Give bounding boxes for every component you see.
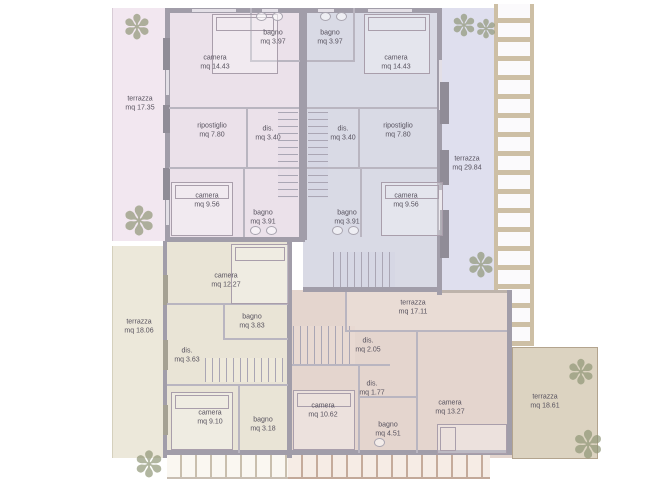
room-area: mq 17.11 [399,308,428,315]
stair-bottom-right [293,326,355,366]
room-name: terrazza [454,155,479,162]
partition [238,386,240,453]
room-area: mq 14.43 [200,63,229,70]
room-area: mq 18.61 [530,402,559,409]
tree-icon: ✽ [123,11,152,45]
room-area: mq 2.05 [355,346,380,353]
label-br-bagno: bagnomq 4.51 [375,421,400,439]
room-name: bagno [253,416,272,423]
partition [345,292,347,332]
room-area: mq 7.80 [199,131,224,138]
pilaster [163,38,170,70]
room-area: mq 3.40 [255,134,280,141]
room-name: camera [203,54,226,61]
partition [345,330,507,332]
pilaster [163,275,168,305]
room-area: mq 12.27 [211,281,240,288]
tree-icon: ✽ [475,17,497,43]
partition [360,169,362,237]
room-name: camera [438,399,461,406]
label-br-terrazza1: terrazzamq 17.11 [399,299,428,317]
room-name: ripostiglio [197,122,227,129]
label-tr-dis: dis.mq 3.40 [330,125,355,143]
pilaster [163,105,170,133]
sink-icon [348,226,359,235]
room-area: mq 3.91 [334,218,359,225]
room-name: bagno [378,421,397,428]
room-name: dis. [263,125,274,132]
room-area: mq 1.77 [359,389,384,396]
tree-icon: ✽ [572,426,604,464]
room-area: mq 4.51 [375,430,400,437]
partition [223,338,288,340]
room-area: mq 3.40 [330,134,355,141]
partition [169,107,299,109]
room-name: dis. [182,347,193,354]
stair-central-right [308,112,328,198]
tree-icon: ✽ [451,12,476,42]
partition [292,364,390,366]
room-area: mq 3.97 [317,38,342,45]
room-name: terrazza [400,299,425,306]
room-name: camera [394,192,417,199]
pilaster [440,82,449,124]
label-tl-bagno2: bagnomq 3.91 [250,209,275,227]
label-tl-camera1: cameramq 14.43 [200,54,229,72]
room-area: mq 17.35 [125,104,154,111]
partition [307,60,355,62]
partition [358,366,360,453]
room-name: bagno [320,29,339,36]
partition [167,384,288,386]
label-tr-camera1: cameramq 14.43 [381,54,410,72]
sink-icon [266,226,277,235]
wall-right-bottom [507,290,512,455]
tree-icon: ✽ [567,356,596,390]
label-br-camera2: cameramq 13.27 [435,399,464,417]
label-bl-bagno2: bagnomq 3.18 [250,416,275,434]
window [368,9,412,12]
pilaster [440,150,449,185]
room-area: mq 9.56 [194,201,219,208]
room-area: mq 9.56 [393,201,418,208]
partition [246,109,248,169]
sink-icon [374,438,385,447]
room-name: camera [311,402,334,409]
room-area: mq 3.83 [239,322,264,329]
label-br-dis1: dis.mq 2.05 [355,337,380,355]
room-name: dis. [367,380,378,387]
label-tr-ripostiglio: ripostigliomq 7.80 [383,122,413,140]
wall-mid-left [165,237,305,242]
pilaster [163,405,168,435]
partition [353,8,355,62]
sink-icon [320,12,331,21]
sink-icon [250,226,261,235]
room-area: mq 29.84 [452,164,481,171]
room-name: terrazza [127,95,152,102]
stair-bottom-left [205,358,283,382]
bed-icon [293,390,355,450]
sink-icon [336,12,347,21]
label-tl-ripostiglio: ripostigliomq 7.80 [197,122,227,140]
partition [307,107,437,109]
deck-bottom-right [288,455,490,479]
room-name: terrazza [532,393,557,400]
tree-icon: ✽ [134,448,164,484]
label-br-camera1: cameramq 10.62 [308,402,337,420]
room-area: mq 9.10 [197,418,222,425]
room-area: mq 3.63 [174,356,199,363]
label-br-dis2: dis.mq 1.77 [359,380,384,398]
room-area: mq 14.43 [381,63,410,70]
room-name: bagno [253,209,272,216]
label-tl-camera2: cameramq 9.56 [194,192,219,210]
pilaster [163,168,170,200]
wall-party-top [299,8,307,240]
sink-icon [272,12,283,21]
room-name: dis. [363,337,374,344]
room-name: dis. [338,125,349,132]
sink-icon [332,226,343,235]
tree-icon: ✽ [122,202,156,242]
deck-bottom-left [167,455,288,479]
label-tr-terrazza: terrazzamq 29.84 [452,155,481,173]
label-bl-camera1: cameramq 12.27 [211,272,240,290]
room-name: camera [214,272,237,279]
label-br-terrazza2: terrazzamq 18.61 [530,393,559,411]
partition [307,167,437,169]
label-bl-dis: dis.mq 3.63 [174,347,199,365]
label-bl-bagno1: bagnomq 3.83 [239,313,264,331]
room-area: mq 7.80 [385,131,410,138]
sink-icon [256,12,267,21]
pilaster [163,340,168,370]
partition [358,109,360,169]
wall-mid-right [303,287,442,292]
room-name: camera [198,409,221,416]
floor-plan: ✽ ✽ ✽ ✽ ✽ ✽ ✽ ✽ terrazzamq 17.35 cameram… [0,0,648,494]
room-area: mq 3.97 [260,38,285,45]
partition [243,169,245,237]
label-tr-bagno1: bagnomq 3.97 [317,29,342,47]
room-area: mq 18.06 [124,327,153,334]
label-tr-bagno2: bagnomq 3.91 [334,209,359,227]
room-name: bagno [242,313,261,320]
bed-icon [437,424,507,454]
room-name: ripostiglio [383,122,413,129]
label-tl-bagno1: bagnomq 3.97 [260,29,285,47]
partition [416,332,418,453]
wall-terrace-rose-top [442,290,507,293]
label-bl-camera2: cameramq 9.10 [197,409,222,427]
partition [169,167,299,169]
room-name: bagno [337,209,356,216]
room-name: camera [195,192,218,199]
tree-icon: ✽ [467,249,496,283]
window [192,9,236,12]
terrace-bottom-left [112,246,166,458]
label-tr-camera2: cameramq 9.56 [393,192,418,210]
room-area: mq 10.62 [308,411,337,418]
label-tl-terrazza: terrazzamq 17.35 [125,95,154,113]
room-area: mq 3.91 [250,218,275,225]
stair-top-right-lower [333,252,395,290]
room-area: mq 3.18 [250,425,275,432]
room-area: mq 13.27 [435,408,464,415]
room-name: camera [384,54,407,61]
partition [223,305,225,340]
stair-central-left [278,112,298,198]
label-bl-terrazza: terrazzamq 18.06 [124,318,153,336]
room-name: terrazza [126,318,151,325]
room-name: bagno [263,29,282,36]
label-tl-dis: dis.mq 3.40 [255,125,280,143]
